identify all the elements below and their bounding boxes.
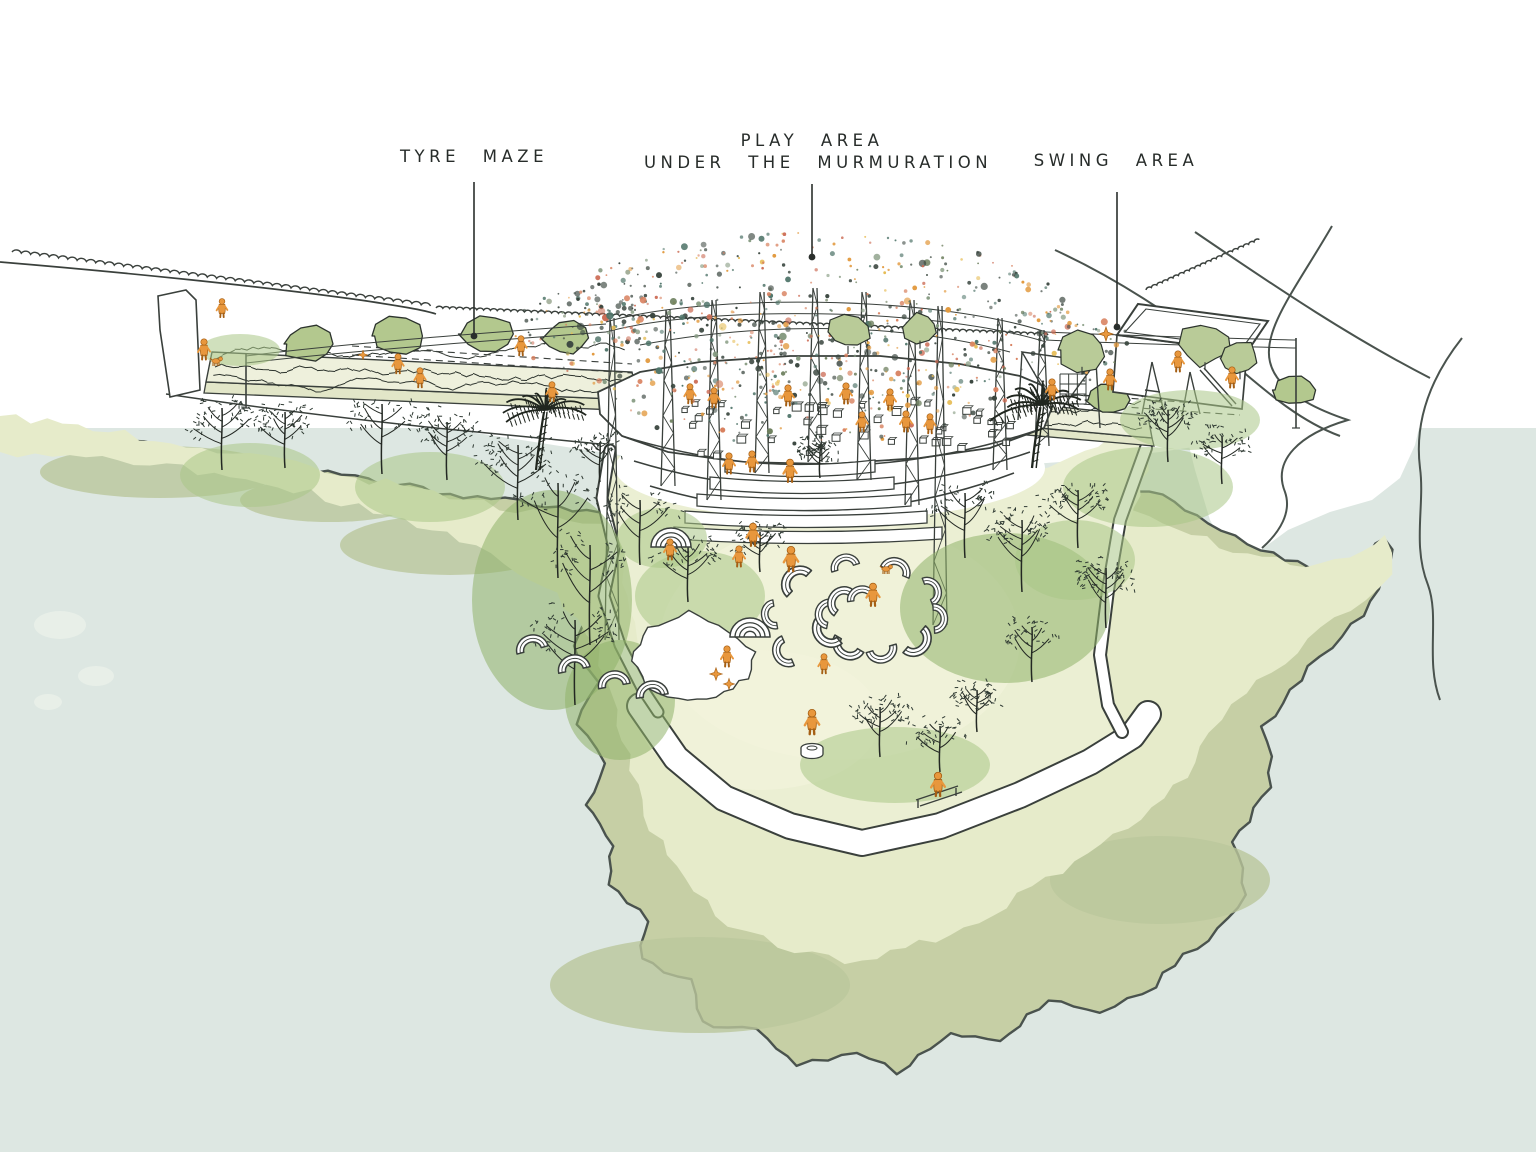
label-play-area-line1: PLAY AREA [741, 131, 884, 150]
seat-cube [958, 445, 965, 451]
label-swing-area: SWING AREA [1034, 151, 1199, 170]
seat-cube [963, 408, 971, 415]
seat-cube [682, 408, 687, 412]
seat-cube [768, 438, 774, 443]
seat-cube [925, 402, 930, 406]
canopy-blob [1120, 390, 1260, 450]
leader-dot [809, 254, 816, 261]
seat-cube [695, 416, 702, 422]
canopy-blob [1063, 447, 1233, 527]
label-tyre-maze: TYRE MAZE [399, 147, 548, 166]
canopy-blob [180, 443, 320, 507]
seat-cube [804, 419, 811, 425]
seat-cube [1007, 423, 1014, 428]
seat-cube [920, 438, 927, 443]
seat-cube [888, 439, 894, 444]
seat-cube [698, 451, 704, 456]
canopy-blob [355, 452, 505, 522]
seat-cube [976, 411, 981, 415]
seat-cube [741, 422, 749, 428]
seat-cube [774, 409, 779, 413]
seat-cube [874, 417, 881, 423]
seat-cube [737, 436, 746, 443]
playground-sketch-canvas: TYRE MAZE PLAY AREA UNDER THE MURMURATIO… [0, 0, 1536, 1152]
sketch-illustration: TYRE MAZE PLAY AREA UNDER THE MURMURATIO… [0, 0, 1536, 1152]
seat-cube [974, 418, 981, 423]
leader-dot [471, 333, 478, 340]
seat-cube [832, 435, 840, 441]
leader-dot [1114, 324, 1121, 331]
seat-cube [833, 411, 841, 417]
seat-cube [892, 409, 901, 416]
seat-cube [690, 423, 696, 428]
seat-cube [995, 424, 1002, 430]
seat-cube [719, 403, 724, 407]
label-play-area-line2: UNDER THE MURMURATION [644, 153, 992, 172]
